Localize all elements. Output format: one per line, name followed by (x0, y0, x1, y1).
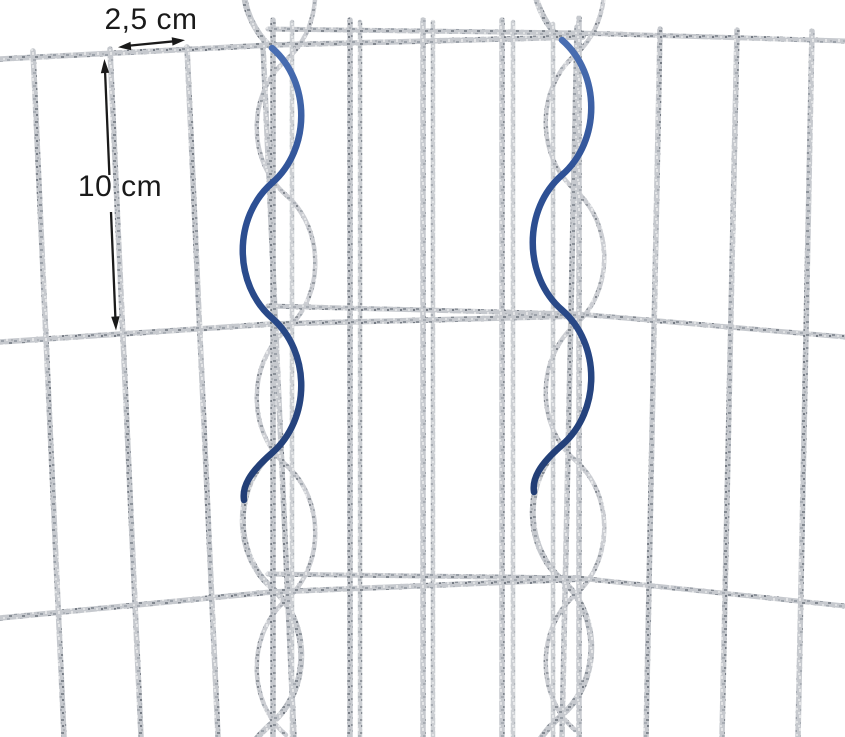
width-dimension-label: 2,5 cm (96, 5, 206, 35)
right-spiral-blue (533, 40, 592, 492)
spiral-connectors-front (243, 0, 592, 737)
product-photo-wire-mesh: 2,5 cm 10 cm (0, 0, 845, 737)
wire-vertical (646, 29, 660, 737)
wire-vertical (187, 47, 218, 737)
mesh-right-panel (562, 27, 812, 737)
wire-vertical (110, 49, 141, 737)
wire-vertical (722, 30, 737, 737)
wire-vertical (33, 51, 64, 737)
mesh-illustration (0, 0, 845, 737)
mesh-front-panel (273, 18, 579, 737)
wire-vertical (798, 31, 812, 737)
height-dimension-label: 10 cm (68, 172, 172, 202)
wire-vertical (562, 27, 577, 737)
wire-vertical (263, 45, 294, 737)
